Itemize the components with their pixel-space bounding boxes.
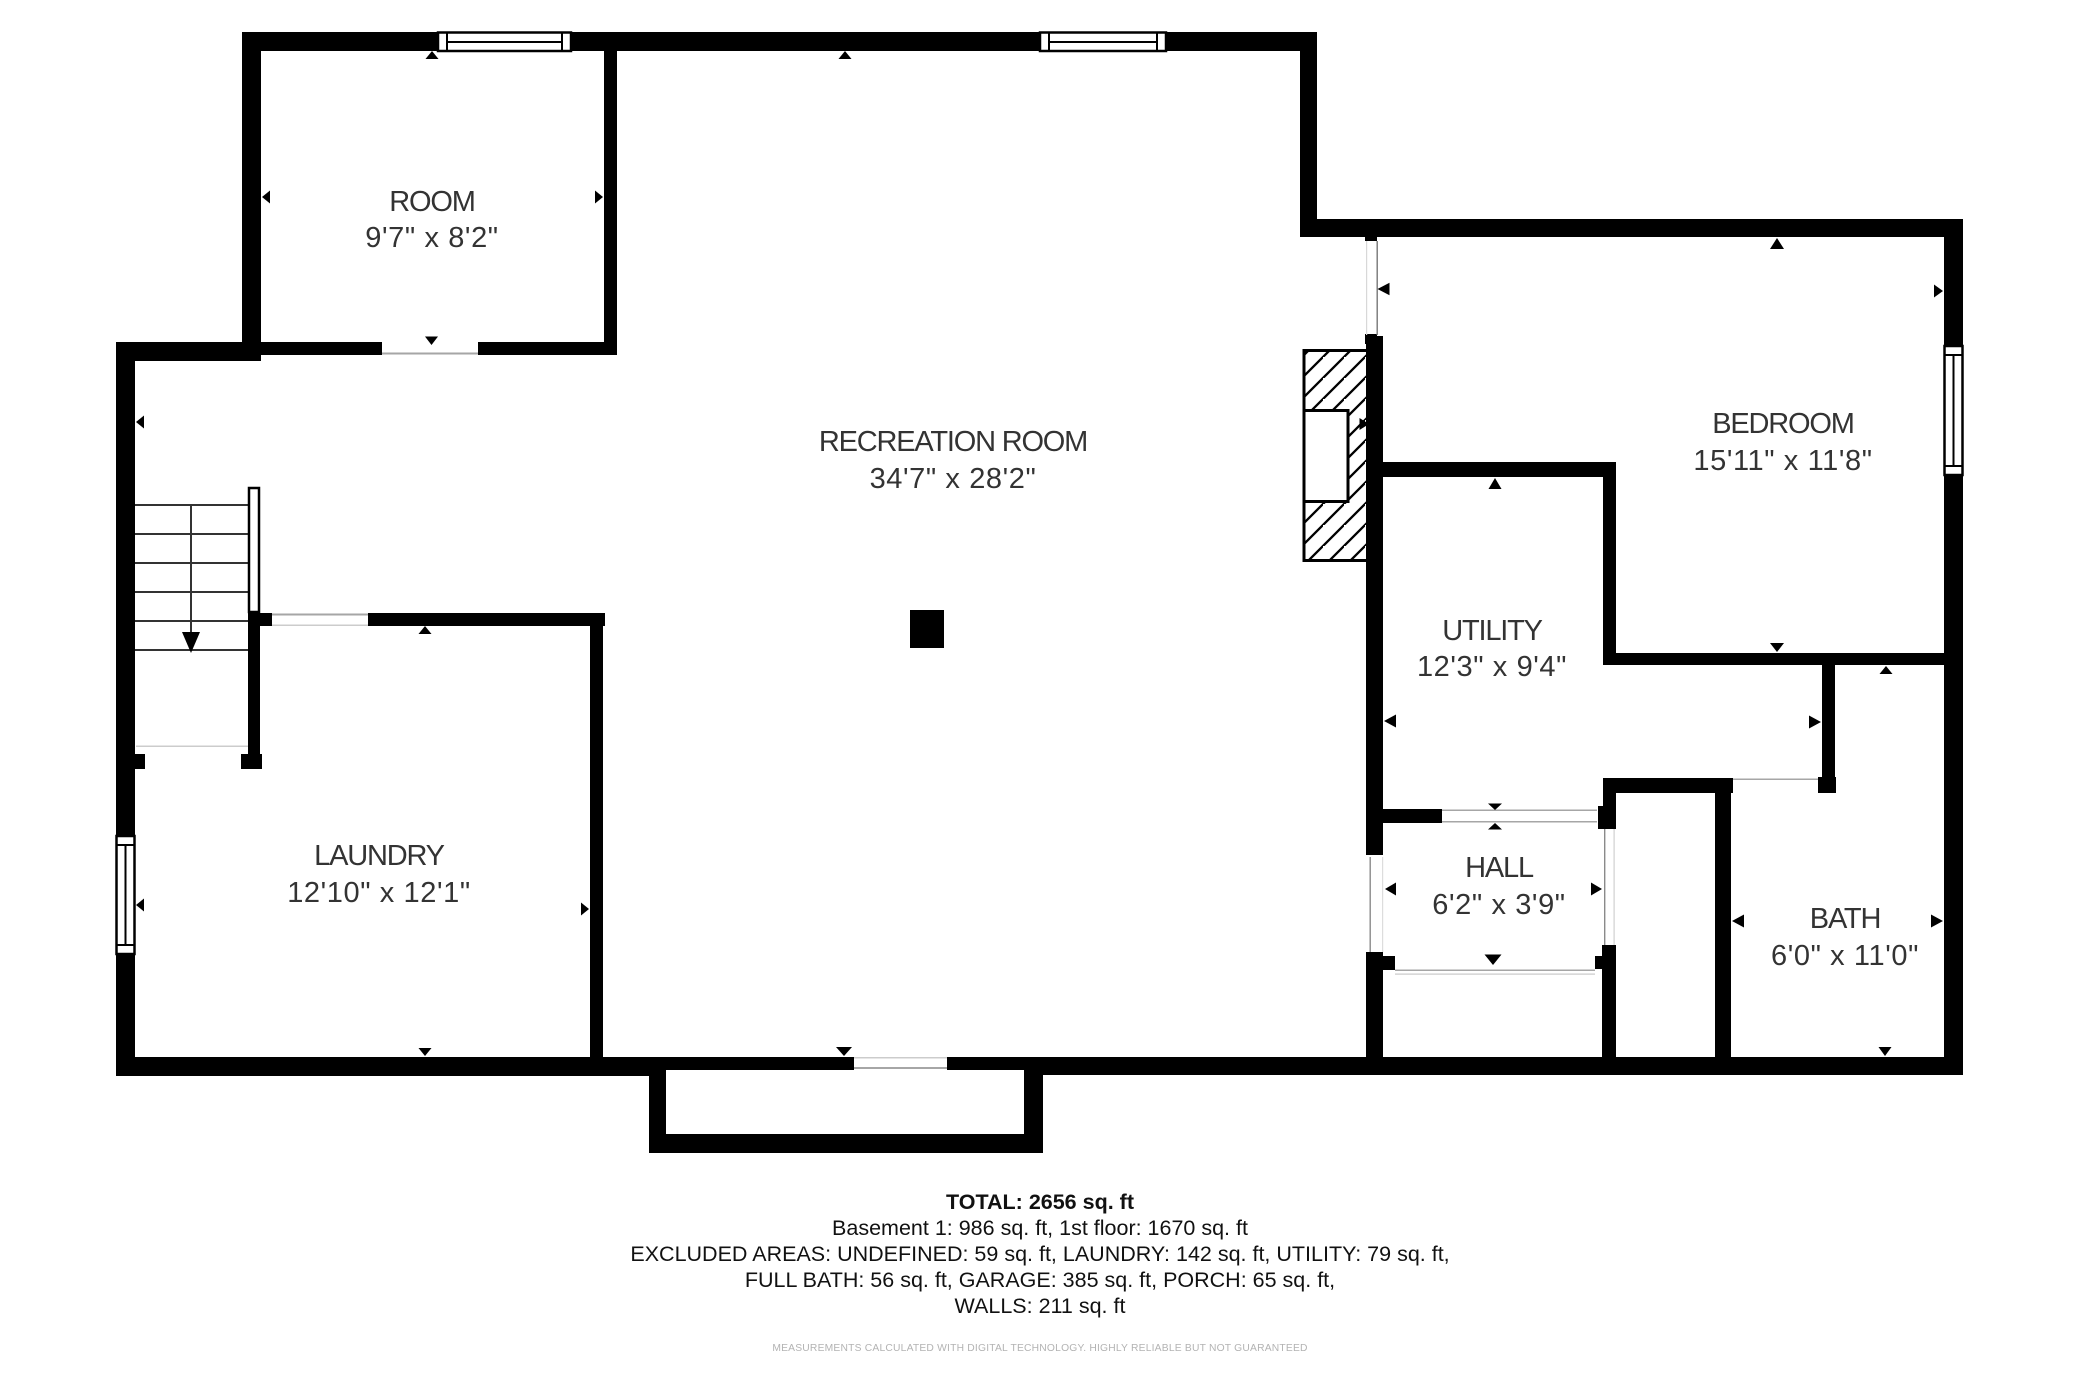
svg-text:RECREATION ROOM: RECREATION ROOM <box>819 426 1087 458</box>
svg-text:MEASUREMENTS CALCULATED WITH D: MEASUREMENTS CALCULATED WITH DIGITAL TEC… <box>772 1343 1307 1354</box>
svg-text:34'7" x 28'2": 34'7" x 28'2" <box>870 463 1037 495</box>
svg-text:UTILITY: UTILITY <box>1442 615 1542 647</box>
svg-text:LAUNDRY: LAUNDRY <box>314 840 445 872</box>
svg-text:WALLS: 211 sq. ft: WALLS: 211 sq. ft <box>955 1294 1126 1318</box>
svg-text:9'7" x 8'2": 9'7" x 8'2" <box>365 222 498 254</box>
svg-text:6'2" x 3'9": 6'2" x 3'9" <box>1432 889 1565 921</box>
svg-text:TOTAL: 2656 sq. ft: TOTAL: 2656 sq. ft <box>946 1190 1134 1214</box>
svg-text:15'11" x 11'8": 15'11" x 11'8" <box>1693 445 1872 477</box>
svg-text:BATH: BATH <box>1810 903 1880 935</box>
svg-text:Basement 1: 986 sq. ft, 1st fl: Basement 1: 986 sq. ft, 1st floor: 1670 … <box>832 1216 1248 1240</box>
svg-text:FULL BATH: 56 sq. ft, GARAGE:: FULL BATH: 56 sq. ft, GARAGE: 385 sq. ft… <box>745 1268 1335 1292</box>
svg-text:EXCLUDED AREAS: UNDEFINED: 59: EXCLUDED AREAS: UNDEFINED: 59 sq. ft, LA… <box>630 1242 1449 1266</box>
svg-text:12'10" x 12'1": 12'10" x 12'1" <box>287 877 471 909</box>
svg-text:HALL: HALL <box>1465 852 1534 884</box>
svg-text:12'3" x 9'4": 12'3" x 9'4" <box>1417 651 1567 683</box>
svg-text:6'0" x 11'0": 6'0" x 11'0" <box>1771 940 1919 972</box>
svg-text:ROOM: ROOM <box>389 186 474 218</box>
svg-text:BEDROOM: BEDROOM <box>1712 408 1853 440</box>
